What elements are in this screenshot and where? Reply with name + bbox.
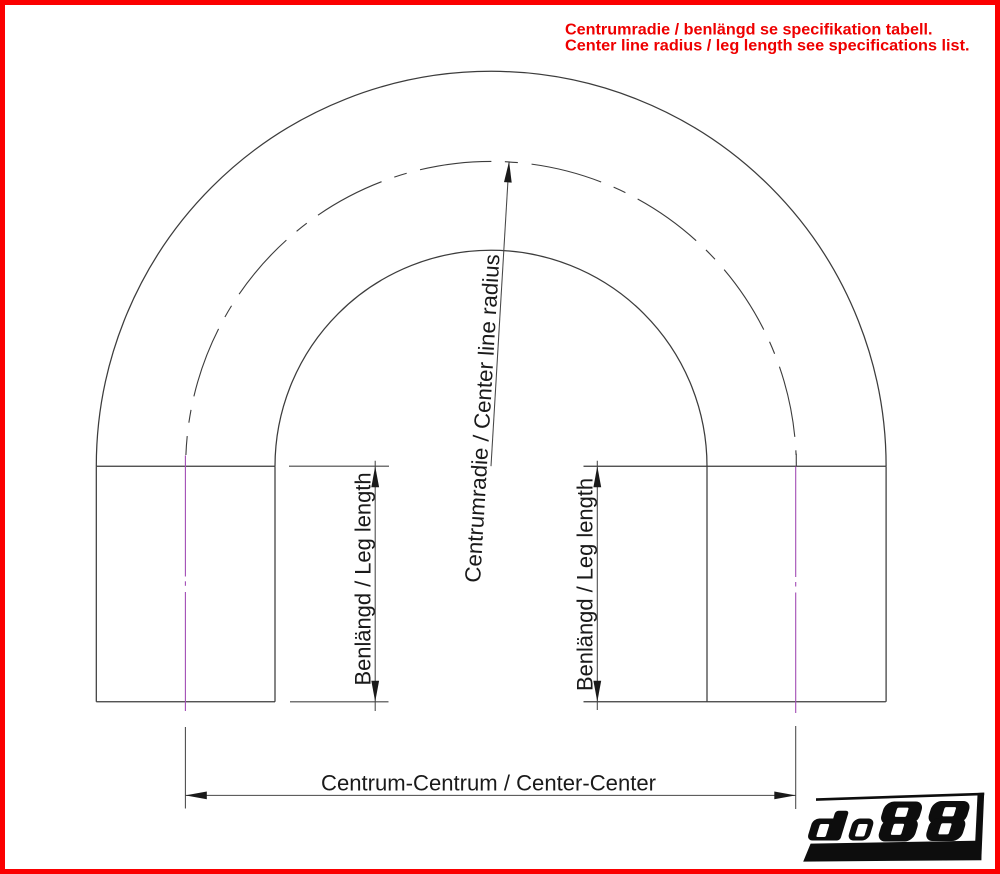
svg-text:Centrum-Centrum / Center-Cente: Centrum-Centrum / Center-Center xyxy=(321,770,656,795)
svg-text:Benlängd / Leg length: Benlängd / Leg length xyxy=(350,473,375,686)
svg-text:Centrumradie / benlängd se spe: Centrumradie / benlängd se specifikation… xyxy=(565,22,933,39)
svg-text:Benlängd / Leg length: Benlängd / Leg length xyxy=(572,478,597,691)
svg-text:Center line radius / leg lengt: Center line radius / leg length see spec… xyxy=(565,38,970,55)
